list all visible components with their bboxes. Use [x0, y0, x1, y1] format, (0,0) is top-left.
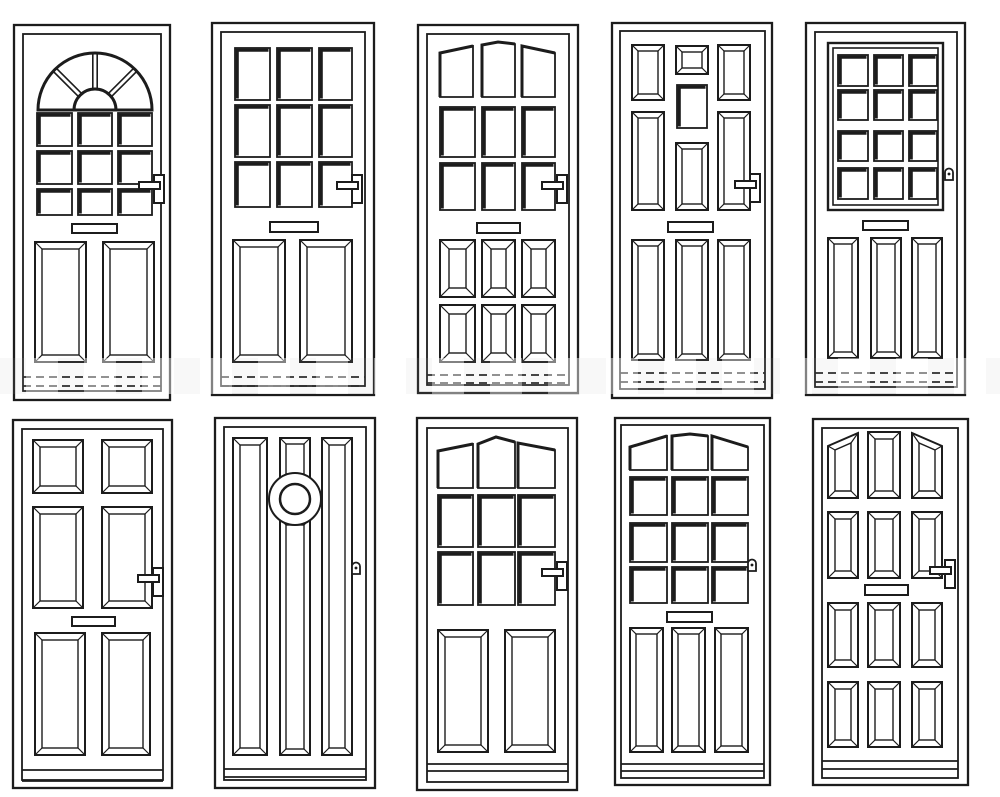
door-8-cathedral-nine-lite-two-panel-door	[417, 418, 577, 790]
door-1-georgian-door-sunburst-fanlight	[14, 25, 170, 400]
door-6-six-panel-door	[13, 420, 172, 788]
door-3-arched-nine-lite-six-panel-door	[418, 25, 578, 393]
door-10-twelve-panel-cathedral-door	[813, 419, 968, 785]
door-7-three-plank-porthole-door	[215, 418, 375, 788]
door-5-twelve-lite-window-three-panel-door	[806, 23, 965, 395]
door-4-victorian-paneled-door-center-window	[612, 23, 772, 398]
door-catalog-sheet	[0, 0, 1000, 797]
door-9-cathedral-twelve-lite-three-panel-door	[615, 418, 770, 785]
door-2-nine-lite-two-panel-door	[212, 23, 374, 395]
doors-illustration	[0, 0, 1000, 797]
